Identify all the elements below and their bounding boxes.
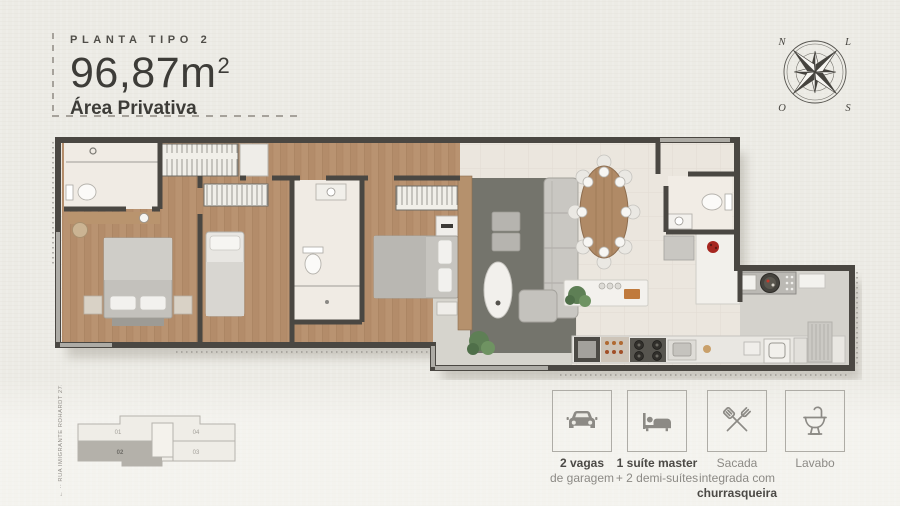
compass-north-label: N [777, 37, 786, 48]
master-bathroom-floor [64, 143, 160, 209]
utility-box [664, 236, 694, 260]
car-icon [562, 401, 602, 441]
grill-icon [717, 401, 757, 441]
compass-rose-icon: N L O S [765, 22, 865, 122]
area-value: 96,87m2 [70, 51, 230, 96]
key-plan: ← ·· RUA IMIGRANTE ROHARDT 273 ·· → 01 0… [48, 385, 248, 503]
master-bed [104, 238, 172, 326]
floor-plan [50, 128, 862, 380]
unit-01-label: 01 [115, 430, 122, 436]
shelf [799, 274, 825, 288]
title-dashed-guide-vertical [52, 33, 54, 117]
caption-line: Sacada [717, 456, 758, 470]
ottoman [492, 233, 520, 251]
caption-line: integrada com [699, 471, 775, 485]
fridge [574, 337, 600, 362]
caption-line: churrasqueira [697, 486, 777, 500]
coffee-table [484, 262, 512, 318]
master-toilet [66, 184, 96, 200]
compass-west-label: O [778, 103, 786, 114]
stove [630, 338, 666, 362]
building-core [152, 423, 173, 457]
unit-02-label: 02 [117, 450, 124, 456]
caption-line: Lavabo [795, 456, 834, 470]
kitchen-counter [696, 232, 740, 304]
bedroom-2-closet [204, 184, 268, 206]
washing-machine [764, 339, 790, 363]
hall-cabinet [240, 144, 268, 176]
ottoman [492, 212, 520, 231]
unit-03-label: 03 [193, 450, 200, 456]
street-label: ← ·· RUA IMIGRANTE ROHARDT 273 ·· → [58, 385, 64, 497]
single-bed [206, 232, 244, 316]
fruit-bowl [707, 241, 719, 253]
dining-set [568, 155, 640, 269]
pantry-shelf [601, 337, 629, 362]
compass-south-label: S [845, 103, 851, 114]
barbecue-sink [741, 275, 756, 290]
area-caption: Área Privativa [70, 98, 230, 120]
round-stool [73, 223, 88, 238]
unit-04-label: 04 [193, 430, 200, 436]
nightstand [174, 296, 192, 314]
caption-lavabo: Lavabo [759, 456, 871, 471]
shower-drain [325, 300, 329, 304]
feature-box-suites [627, 390, 687, 452]
feature-box-garage [552, 390, 612, 452]
counter-decor [703, 345, 711, 353]
tall-cabinet [794, 338, 807, 363]
lavabo-toilet [702, 194, 732, 210]
armchair [519, 290, 557, 322]
bedroom-3-closet [396, 186, 458, 210]
bed-icon [637, 401, 677, 441]
title-block: PLANTA TIPO 2 96,87m2 Área Privativa [70, 34, 230, 120]
double-bed [374, 236, 458, 298]
grill [761, 274, 780, 293]
compass-east-label: L [844, 37, 851, 48]
nightstand [84, 296, 102, 314]
kitchen-sink [668, 340, 696, 360]
bedroom-bench [437, 302, 457, 315]
plan-type-label: PLANTA TIPO 2 [70, 34, 230, 46]
caption-line: 2 vagas [560, 456, 604, 470]
laundry-sink [744, 342, 760, 355]
floor-grate [808, 322, 832, 362]
master-wardrobe [162, 144, 238, 176]
wood-panel-divider [458, 176, 472, 330]
feature-box-lavabo [785, 390, 845, 452]
washbasin-icon [795, 401, 835, 441]
feature-box-barbecue [707, 390, 767, 452]
vanity-sink [140, 214, 149, 223]
